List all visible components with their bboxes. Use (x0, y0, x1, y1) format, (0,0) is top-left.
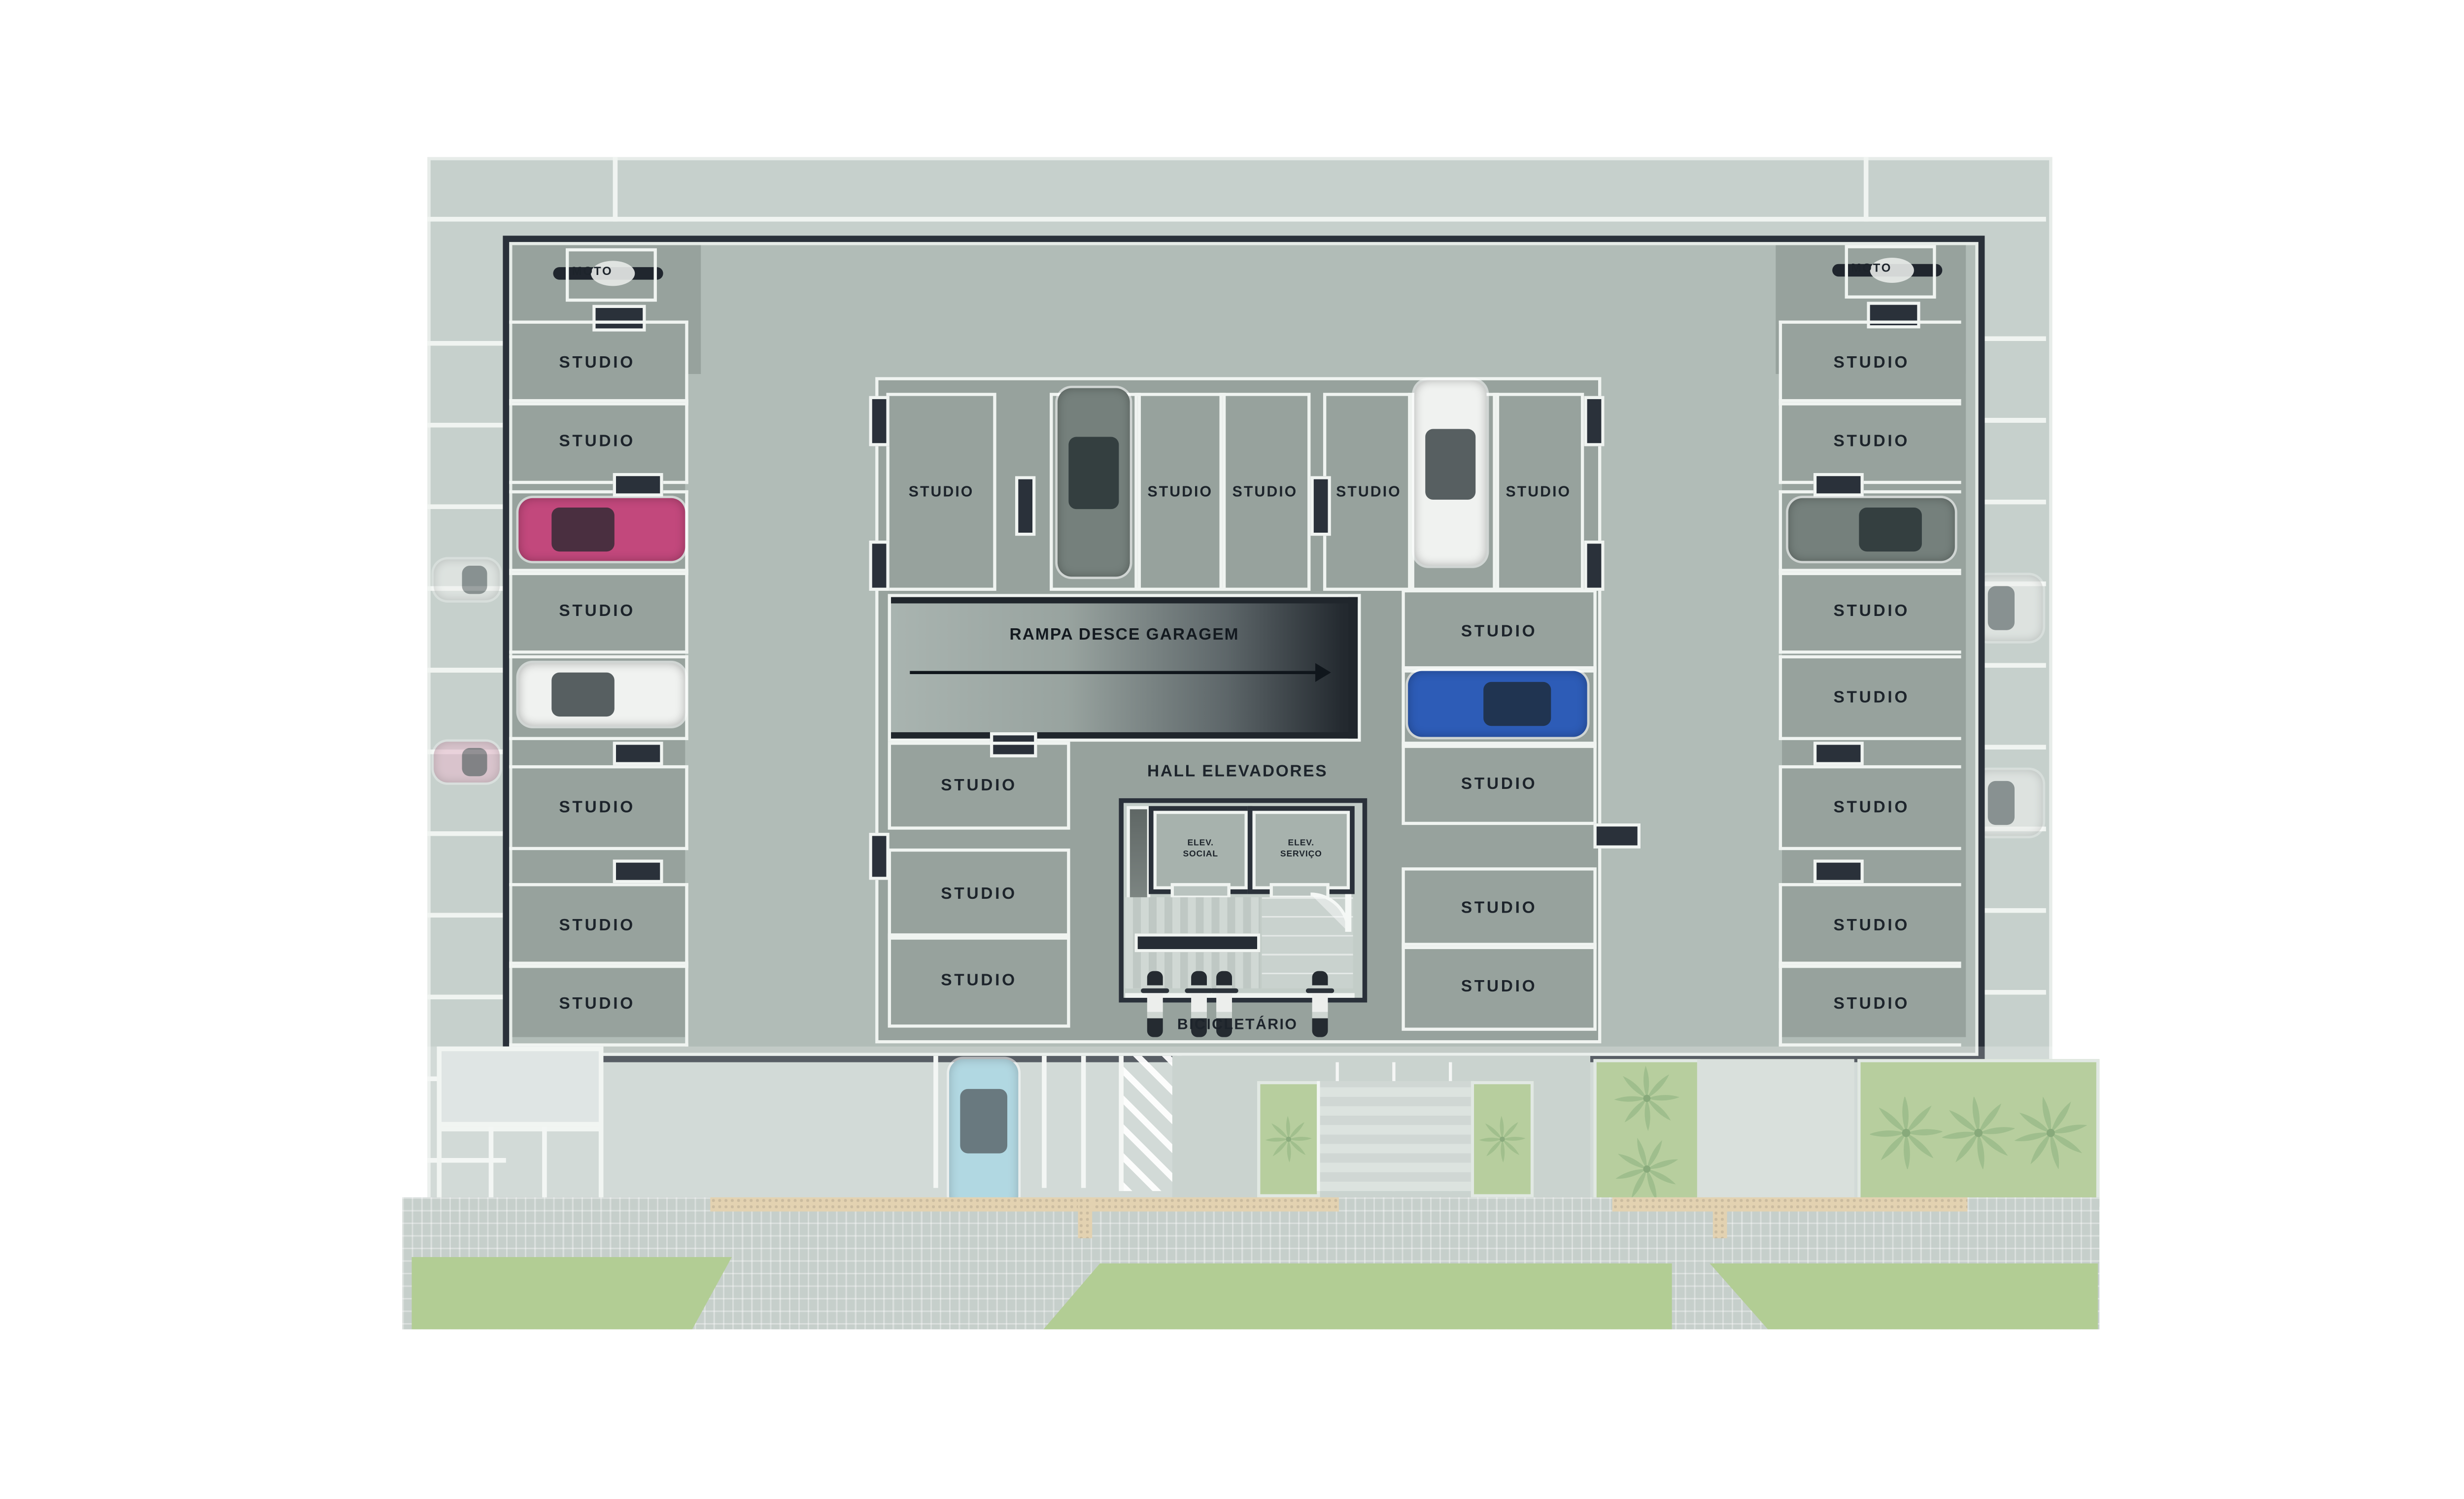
parking-space-label: STUDIO (1834, 602, 1910, 620)
moto-label: MOTO (1851, 261, 1892, 275)
lane-line (1081, 1056, 1086, 1188)
car-glass (461, 566, 486, 593)
parking-space-label: STUDIO (941, 971, 1017, 990)
parking-space-label: STUDIO (1461, 774, 1538, 792)
entry-walkway (1697, 1059, 1854, 1200)
parking-space-label: STUDIO (559, 602, 635, 620)
tactile-paving (710, 1197, 1339, 1212)
tactile-paving (1713, 1197, 1727, 1238)
ramp-wall (891, 732, 1358, 739)
grass-strip (411, 1257, 742, 1329)
grass-strip (1043, 1263, 1672, 1329)
parking-space: STUDIO (1779, 321, 1961, 406)
bike-area-label: BICICLETÁRIO (1100, 1017, 1375, 1034)
ramp-wall (891, 597, 1358, 604)
parking-space: STUDIO (509, 962, 688, 1047)
marking-line (542, 1126, 547, 1199)
pillar (613, 742, 663, 765)
parking-space: STUDIO (509, 765, 688, 850)
palm-tree-icon (1942, 1097, 2015, 1169)
parking-space: STUDIO (1779, 655, 1961, 740)
car-glass (1987, 781, 2014, 825)
parked-car (518, 663, 685, 726)
pillar (1814, 742, 1864, 765)
parking-space-label: STUDIO (559, 353, 635, 372)
parking-space: STUDIO (1402, 943, 1596, 1031)
moto-label: MOTO (572, 264, 613, 278)
parked-car (1058, 388, 1130, 577)
parking-space-label: STUDIO (559, 916, 635, 935)
palm-tree-icon (1870, 1097, 1943, 1169)
parked-car (1408, 671, 1587, 737)
parking-space: STUDIO (1779, 883, 1961, 968)
ramp-arrow-icon (910, 671, 1318, 674)
palm-tree-icon (1614, 1135, 1680, 1201)
parked-car (1788, 498, 1955, 561)
palm-tree-icon (2015, 1097, 2087, 1169)
planter (1593, 1059, 1700, 1207)
car-glass (552, 508, 615, 551)
car-glass (1987, 586, 2014, 631)
parking-space-label: STUDIO (1147, 483, 1213, 501)
parking-space: STUDIO (888, 742, 1070, 830)
parking-space: STUDIO (1402, 589, 1596, 673)
parking-space: STUDIO (1134, 393, 1226, 591)
parking-space-label: STUDIO (1834, 798, 1910, 817)
tactile-paving (1078, 1197, 1093, 1238)
parked-car (434, 742, 500, 783)
car-glass (1858, 508, 1921, 551)
parking-space-label: STUDIO (1834, 994, 1910, 1013)
pillar (1584, 541, 1604, 591)
tactile-paving (1612, 1197, 1968, 1212)
stair-handrail (1134, 933, 1260, 952)
door-swing-icon (1307, 891, 1351, 935)
elevator-sill (1171, 883, 1231, 899)
parking-space-label: STUDIO (941, 885, 1017, 903)
parking-space-label: STUDIO (559, 994, 635, 1013)
parking-space-label: STUDIO (1834, 432, 1910, 451)
entry-stairs (1317, 1081, 1474, 1191)
pillar (613, 859, 663, 883)
parking-space: STUDIO (1493, 393, 1584, 591)
parking-space-label: STUDIO (1336, 483, 1402, 501)
exterior-bays (437, 1122, 603, 1199)
floor-plan: MOTO MOTO STUDIO STUDIO STUDIO STUDIO ST… (0, 0, 2464, 1499)
parking-space: STUDIO (888, 933, 1070, 1027)
ramp-arrow-head (1315, 663, 1331, 682)
parking-space: STUDIO (1779, 569, 1961, 653)
parking-space: STUDIO (1779, 765, 1961, 850)
parked-car (1414, 380, 1487, 566)
parked-car (434, 559, 500, 600)
palm-tree-icon (1614, 1064, 1680, 1130)
parking-space: STUDIO (509, 569, 688, 653)
parking-space-label: STUDIO (1834, 688, 1910, 707)
parking-space-label: STUDIO (1506, 483, 1571, 501)
palm-tree-icon (1262, 1113, 1315, 1166)
parking-space-label: STUDIO (1834, 916, 1910, 935)
elevator-label: ELEV.SERVIÇO (1280, 840, 1322, 860)
pillar (1814, 859, 1864, 883)
lane-line (1042, 1056, 1047, 1188)
car-glass (1483, 681, 1551, 726)
grass-strip (1710, 1263, 2098, 1329)
car-glass (1426, 428, 1475, 499)
parking-space: STUDIO (1402, 742, 1596, 825)
garage-ramp: RAMPA DESCE GARAGEM (888, 594, 1361, 742)
marking-line (489, 1126, 494, 1199)
parked-car (949, 1059, 1018, 1210)
parking-space: STUDIO (509, 399, 688, 484)
marking-line (427, 217, 2046, 222)
parking-space-label: STUDIO (559, 432, 635, 451)
car-glass (960, 1089, 1007, 1153)
pillar (1310, 476, 1331, 536)
elevator-servico: ELEV.SERVIÇO (1248, 806, 1355, 894)
parking-space: STUDIO (1402, 867, 1596, 949)
moto-bay-right: MOTO (1829, 242, 1946, 302)
planter (1471, 1081, 1534, 1197)
parking-space: STUDIO (1219, 393, 1310, 591)
palm-tree-icon (1475, 1113, 1529, 1166)
parking-space: STUDIO (509, 883, 688, 968)
parking-space-label: STUDIO (941, 776, 1017, 795)
parked-car (518, 498, 685, 561)
parking-space-label: STUDIO (1461, 621, 1538, 640)
lane-line (933, 1056, 938, 1188)
parking-space: STUDIO (888, 849, 1070, 940)
marking-line (613, 157, 618, 222)
pillar (869, 541, 889, 591)
planter (1857, 1059, 2099, 1207)
parking-space: STUDIO (1323, 393, 1414, 591)
hall-label: HALL ELEVADORES (1068, 762, 1406, 781)
parking-space: STUDIO (886, 393, 996, 591)
parking-space-label: STUDIO (909, 483, 974, 501)
parking-space: STUDIO (509, 321, 688, 406)
pillar (1584, 396, 1604, 446)
car-glass (1069, 437, 1119, 509)
ramp-label: RAMPA DESCE GARAGEM (891, 625, 1358, 644)
parking-space-label: STUDIO (559, 798, 635, 817)
pillar (869, 396, 889, 446)
pillar (1814, 473, 1864, 497)
pillar (613, 473, 663, 497)
marking-line (1864, 157, 1869, 222)
parking-space: STUDIO (1779, 399, 1961, 484)
moto-bay-left: MOTO (553, 245, 669, 305)
parking-space-label: STUDIO (1834, 353, 1910, 372)
ramp-wall (1348, 597, 1358, 739)
pillar (1593, 823, 1641, 849)
parking-space: STUDIO (1779, 962, 1961, 1047)
elevator-label: ELEV.SOCIAL (1183, 840, 1218, 860)
parking-space-label: STUDIO (1461, 977, 1538, 996)
elevator-social: ELEV.SOCIAL (1149, 806, 1252, 894)
parking-space-label: STUDIO (1461, 899, 1538, 918)
pillar (1015, 476, 1035, 536)
car-glass (461, 748, 486, 776)
parking-space-label: STUDIO (1232, 483, 1298, 501)
car-glass (552, 673, 615, 716)
pillar (869, 833, 889, 880)
exterior-room (437, 1047, 603, 1131)
planter (1257, 1081, 1320, 1197)
